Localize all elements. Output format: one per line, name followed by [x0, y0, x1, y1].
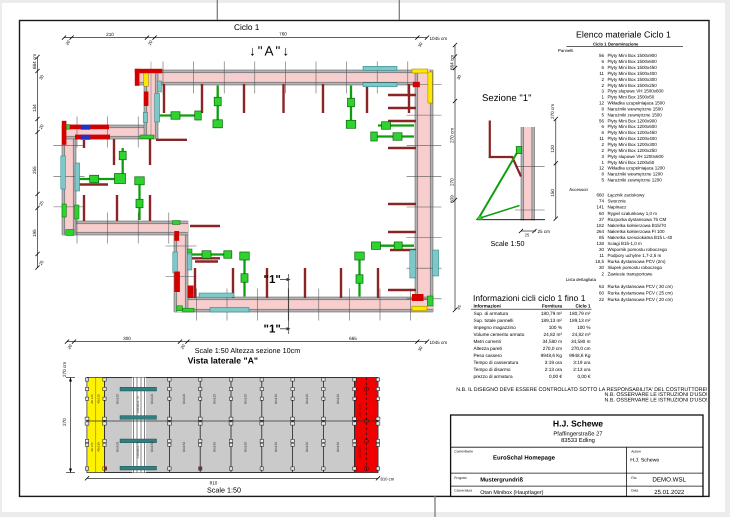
svg-text:684 cm: 684 cm	[449, 55, 454, 70]
svg-text:90x150: 90x150	[182, 442, 186, 453]
svg-text:660: 660	[596, 193, 604, 198]
svg-text:300x270: 300x270	[358, 445, 362, 458]
svg-text:Ciclo 1: Ciclo 1	[575, 304, 591, 309]
svg-text:Committente: Committente	[454, 450, 473, 454]
svg-text:Sworznie: Sworznie	[608, 199, 627, 204]
svg-text:Narożniki wewnętrzne 1200: Narożniki wewnętrzne 1200	[608, 172, 664, 177]
svg-text:Mustergrundriß: Mustergrundriß	[480, 476, 523, 483]
svg-text:"1": "1"	[264, 324, 281, 336]
svg-text:Płyty Mini Box 1200x250: Płyty Mini Box 1200x250	[608, 148, 658, 153]
svg-text:Płyty Mini Box 1200x450: Płyty Mini Box 1200x450	[608, 130, 658, 135]
svg-text:Vista laterale "A": Vista laterale "A"	[188, 355, 258, 365]
svg-text:90x120: 90x120	[182, 394, 186, 405]
svg-text:Słupek pomostu roboczego: Słupek pomostu roboczego	[608, 265, 663, 270]
svg-text:100 %: 100 %	[577, 325, 590, 330]
svg-text:9948,6 Kg: 9948,6 Kg	[541, 353, 563, 358]
svg-text:56: 56	[599, 118, 605, 123]
svg-text:138: 138	[596, 241, 604, 246]
svg-text:25: 25	[525, 233, 530, 238]
svg-text:prezzo di armatura: prezzo di armatura	[474, 374, 513, 379]
svg-text:Scale 1:50: Scale 1:50	[491, 239, 525, 248]
svg-text:Peso cassero: Peso cassero	[474, 353, 503, 358]
svg-text:Sup. di armatura: Sup. di armatura	[474, 311, 509, 316]
svg-text:Płyty Mini Box 1500x600: Płyty Mini Box 1500x600	[608, 59, 658, 64]
svg-text:90x120: 90x120	[243, 394, 247, 405]
svg-text:90x150: 90x150	[274, 442, 278, 453]
svg-text:Narożniki wewnętrzne 1500: Narożniki wewnętrzne 1500	[608, 106, 664, 111]
svg-text:Płyty Mini Box 1500x450: Płyty Mini Box 1500x450	[608, 65, 658, 70]
svg-text:25 cm: 25 cm	[538, 229, 551, 234]
svg-text:Scale 1:50: Scale 1:50	[207, 485, 241, 494]
svg-text:Wspornik pomostu roboczego: Wspornik pomostu roboczego	[608, 247, 668, 252]
svg-text:3:19 ora: 3:19 ora	[573, 360, 591, 365]
svg-text:74: 74	[599, 199, 605, 204]
svg-text:Napinacz: Napinacz	[608, 205, 628, 210]
svg-text:90x120: 90x120	[305, 394, 309, 405]
svg-text:Rurka dystansowa PCV (2m): Rurka dystansowa PCV (2m)	[608, 259, 667, 264]
svg-text:Płyty Mini Box 1200x400: Płyty Mini Box 1200x400	[608, 136, 658, 141]
svg-text:Narożniki zewnętrzne 1200: Narożniki zewnętrzne 1200	[608, 178, 663, 183]
svg-text:90x120: 90x120	[274, 394, 278, 405]
svg-text:Sup. totale pannelli: Sup. totale pannelli	[474, 318, 514, 323]
svg-text:Casseratura: Casseratura	[454, 488, 472, 492]
svg-text:140x90x2.70: 140x90x2.70	[136, 396, 140, 414]
svg-text:18,5: 18,5	[595, 259, 604, 264]
svg-text:Nakretka szesciokatna B15 L-40: Nakretka szesciokatna B15 L-40	[608, 235, 673, 240]
svg-text:Płyty Mini Box 1500x250: Płyty Mini Box 1500x250	[608, 83, 658, 88]
svg-text:90x150: 90x150	[305, 442, 309, 453]
svg-text:24,82 m³: 24,82 m³	[572, 332, 591, 337]
svg-text:AE 120: AE 120	[90, 394, 94, 404]
svg-text:11: 11	[599, 253, 604, 258]
svg-text:H.J. Schewe: H.J. Schewe	[630, 458, 659, 464]
svg-text:Płyty Mini Box 1500x400: Płyty Mini Box 1500x400	[608, 71, 658, 76]
svg-text:Rygiel szalunkowy 1,0 m: Rygiel szalunkowy 1,0 m	[608, 211, 658, 216]
svg-text:270,0 cm: 270,0 cm	[571, 346, 590, 351]
svg-text:Rurka dystansowa PCV ( 25 cm): Rurka dystansowa PCV ( 25 cm)	[608, 291, 674, 296]
svg-text:40x120: 40x120	[97, 394, 101, 404]
svg-text:9948,6 Kg: 9948,6 Kg	[569, 353, 591, 358]
svg-text:210: 210	[106, 32, 114, 37]
svg-text:Płyty Mini Box 1200x50: Płyty Mini Box 1200x50	[608, 160, 655, 165]
svg-text:Denominazione: Denominazione	[608, 41, 639, 46]
svg-text:180,79 m²: 180,79 m²	[569, 311, 591, 316]
svg-text:12: 12	[599, 166, 605, 171]
svg-text:810 cm: 810 cm	[381, 476, 395, 481]
svg-text:Sezione "1": Sezione "1"	[482, 93, 531, 104]
svg-text:Rurka dystansowa PCV ( 30 cm): Rurka dystansowa PCV ( 30 cm)	[608, 284, 674, 289]
svg-text:12: 12	[599, 101, 605, 106]
svg-text:Data: Data	[631, 488, 638, 492]
svg-text:2:13 ora: 2:13 ora	[545, 367, 563, 372]
svg-text:EuroSchal Homepage: EuroSchal Homepage	[493, 455, 556, 462]
svg-text:34,580 m: 34,580 m	[542, 339, 562, 344]
svg-text:300x270: 300x270	[358, 403, 362, 416]
svg-text:270 cm: 270 cm	[550, 104, 555, 119]
svg-text:0,00 €: 0,00 €	[549, 374, 562, 379]
svg-text:30: 30	[599, 247, 605, 252]
svg-text:Płyty Mini Box 1200x600: Płyty Mini Box 1200x600	[608, 124, 658, 129]
svg-text:30: 30	[599, 265, 605, 270]
svg-text:760: 760	[279, 32, 287, 37]
svg-text:90x150: 90x150	[150, 442, 154, 453]
svg-text:11: 11	[599, 136, 604, 141]
svg-text:Rozporka dystansowa 75 CM: Rozporka dystansowa 75 CM	[608, 217, 667, 222]
svg-text:141: 141	[596, 205, 604, 210]
svg-text:34,580 m: 34,580 m	[571, 339, 591, 344]
svg-text:134: 134	[32, 104, 37, 112]
svg-text:3:19 ora: 3:19 ora	[545, 360, 563, 365]
svg-text:180,79 m²: 180,79 m²	[541, 311, 563, 316]
svg-text:Płyty Mini Box 1200x300: Płyty Mini Box 1200x300	[608, 142, 658, 147]
svg-text:100 %: 100 %	[549, 325, 562, 330]
svg-text:Elenco materiale Ciclo 1: Elenco materiale Ciclo 1	[576, 29, 671, 39]
svg-text:270 cm: 270 cm	[449, 128, 454, 143]
svg-text:60: 60	[599, 211, 605, 216]
svg-text:Wkładka uzupełniajaca 1200: Wkładka uzupełniajaca 1200	[608, 166, 666, 171]
svg-text:↓"A"↓: ↓"A"↓	[249, 43, 291, 58]
svg-text:Tempo di casseratura: Tempo di casseratura	[474, 360, 519, 365]
svg-text:Płyty Mini Box 1500x300: Płyty Mini Box 1500x300	[608, 77, 658, 82]
svg-text:270,0 cm: 270,0 cm	[543, 346, 562, 351]
svg-text:90x150: 90x150	[116, 442, 120, 453]
svg-text:182: 182	[596, 223, 604, 228]
svg-text:150: 150	[550, 189, 555, 197]
svg-text:Metri correnti: Metri correnti	[474, 339, 501, 344]
svg-text:270: 270	[449, 178, 454, 186]
svg-text:684 cm: 684 cm	[32, 54, 37, 69]
svg-text:1045 cm: 1045 cm	[430, 340, 448, 345]
svg-text:63: 63	[599, 284, 605, 289]
svg-text:Pannelli: Pannelli	[558, 48, 573, 53]
svg-text:Wkładka uzupełniajaca 1500: Wkładka uzupełniajaca 1500	[608, 101, 666, 106]
svg-text:37: 37	[599, 217, 605, 222]
svg-text:Ciclo 1: Ciclo 1	[593, 41, 607, 46]
svg-text:22: 22	[599, 297, 605, 302]
svg-text:Płyty słupowe VH 1200x600: Płyty słupowe VH 1200x600	[608, 154, 665, 159]
svg-text:270: 270	[62, 418, 67, 426]
svg-text:N.B. OSSERVARE LE ISTRUZIONI D: N.B. OSSERVARE LE ISTRUZIONI D'USO!	[605, 398, 708, 404]
svg-text:90x150: 90x150	[336, 442, 340, 453]
svg-text:Otan Minibox (Hauptlager): Otan Minibox (Hauptlager)	[480, 490, 543, 496]
svg-text:90x120: 90x120	[150, 394, 154, 405]
svg-text:0,00 €: 0,00 €	[577, 374, 590, 379]
svg-text:Płyty słupowe VH 1500x600: Płyty słupowe VH 1500x600	[608, 89, 665, 94]
svg-text:255: 255	[32, 166, 37, 174]
svg-text:Łącznik zaciskowy: Łącznik zaciskowy	[608, 193, 646, 198]
svg-text:Scale 1:50 Altezza sezione 1: Scale 1:50 Altezza sezione 10cm	[195, 346, 300, 355]
svg-text:56: 56	[599, 53, 605, 58]
svg-text:Accessori: Accessori	[569, 187, 588, 192]
svg-text:140x90x2.70: 140x90x2.70	[136, 441, 140, 459]
svg-text:Pfaffingerstraße 27: Pfaffingerstraße 27	[553, 430, 602, 437]
svg-text:AE 150: AE 150	[90, 442, 94, 452]
svg-text:H.J. Schewe: H.J. Schewe	[553, 418, 603, 428]
svg-text:Narożniki zewnętrzne 1500: Narożniki zewnętrzne 1500	[608, 112, 663, 117]
svg-text:40x150: 40x150	[97, 442, 101, 452]
svg-text:DEMO.WSL: DEMO.WSL	[652, 476, 686, 483]
svg-text:Tempo di disarmo: Tempo di disarmo	[474, 367, 511, 372]
svg-text:120: 120	[550, 145, 555, 153]
svg-text:Płyty Mini Box 1500x50: Płyty Mini Box 1500x50	[608, 95, 655, 100]
svg-text:60: 60	[599, 291, 605, 296]
svg-text:264: 264	[596, 229, 604, 234]
svg-text:Fornitura: Fornitura	[542, 304, 563, 309]
svg-text:Altezza pareti: Altezza pareti	[474, 346, 502, 351]
svg-text:83533 Edling: 83533 Edling	[561, 437, 595, 444]
svg-text:189,13 m²: 189,13 m²	[541, 318, 563, 323]
svg-text:2:13 ora: 2:13 ora	[573, 367, 591, 372]
svg-text:Płyty Mini Box 1200x900: Płyty Mini Box 1200x900	[608, 118, 658, 123]
svg-text:11: 11	[599, 71, 604, 76]
svg-text:Sciagi B15-1,0 m: Sciagi B15-1,0 m	[608, 241, 643, 246]
svg-text:609: 609	[449, 195, 454, 203]
svg-text:Podpory uchylne 1,7-2,5 m: Podpory uchylne 1,7-2,5 m	[608, 253, 662, 258]
svg-text:90x120: 90x120	[336, 394, 340, 405]
svg-text:Informazioni: Informazioni	[474, 304, 501, 309]
svg-text:Płyty Mini Box 1500x900: Płyty Mini Box 1500x900	[608, 53, 658, 58]
svg-text:300: 300	[123, 336, 131, 341]
svg-text:Lista dettagliata: Lista dettagliata	[566, 277, 597, 282]
svg-text:665: 665	[349, 336, 357, 341]
svg-text:Volume cemento armato: Volume cemento armato	[474, 332, 525, 337]
svg-text:Zawiesie transportowe: Zawiesie transportowe	[608, 271, 654, 276]
svg-text:Nakretka kołnierzowa FI 100: Nakretka kołnierzowa FI 100	[608, 229, 666, 234]
svg-text:24,82 m³: 24,82 m³	[544, 332, 563, 337]
svg-text:Progetto: Progetto	[454, 476, 467, 480]
svg-text:25.01.2022: 25.01.2022	[654, 489, 685, 496]
svg-text:File: File	[631, 476, 636, 480]
svg-text:1045 cm: 1045 cm	[430, 36, 448, 41]
svg-text:Informazioni cicli ciclo 1 fi: Informazioni cicli ciclo 1 fino 1	[473, 293, 586, 303]
svg-text:Impegno magazzino: Impegno magazzino	[474, 325, 517, 330]
svg-text:Nakretka kołnierzowa B15/70: Nakretka kołnierzowa B15/70	[608, 223, 667, 228]
svg-text:Autore: Autore	[631, 449, 641, 453]
svg-text:189,13 m²: 189,13 m²	[569, 318, 591, 323]
svg-text:195: 195	[32, 229, 37, 237]
svg-text:90x150: 90x150	[213, 442, 217, 453]
svg-text:85: 85	[599, 235, 605, 240]
svg-text:90x120: 90x120	[116, 394, 120, 405]
svg-text:Ciclo 1: Ciclo 1	[234, 22, 260, 32]
svg-text:90x120: 90x120	[213, 394, 217, 405]
svg-text:Rurka dystansowa PCV ( 20 cm): Rurka dystansowa PCV ( 20 cm)	[608, 297, 674, 302]
svg-text:270 cm: 270 cm	[62, 362, 67, 377]
svg-text:"1": "1"	[264, 274, 281, 286]
svg-text:90x150: 90x150	[243, 442, 247, 453]
